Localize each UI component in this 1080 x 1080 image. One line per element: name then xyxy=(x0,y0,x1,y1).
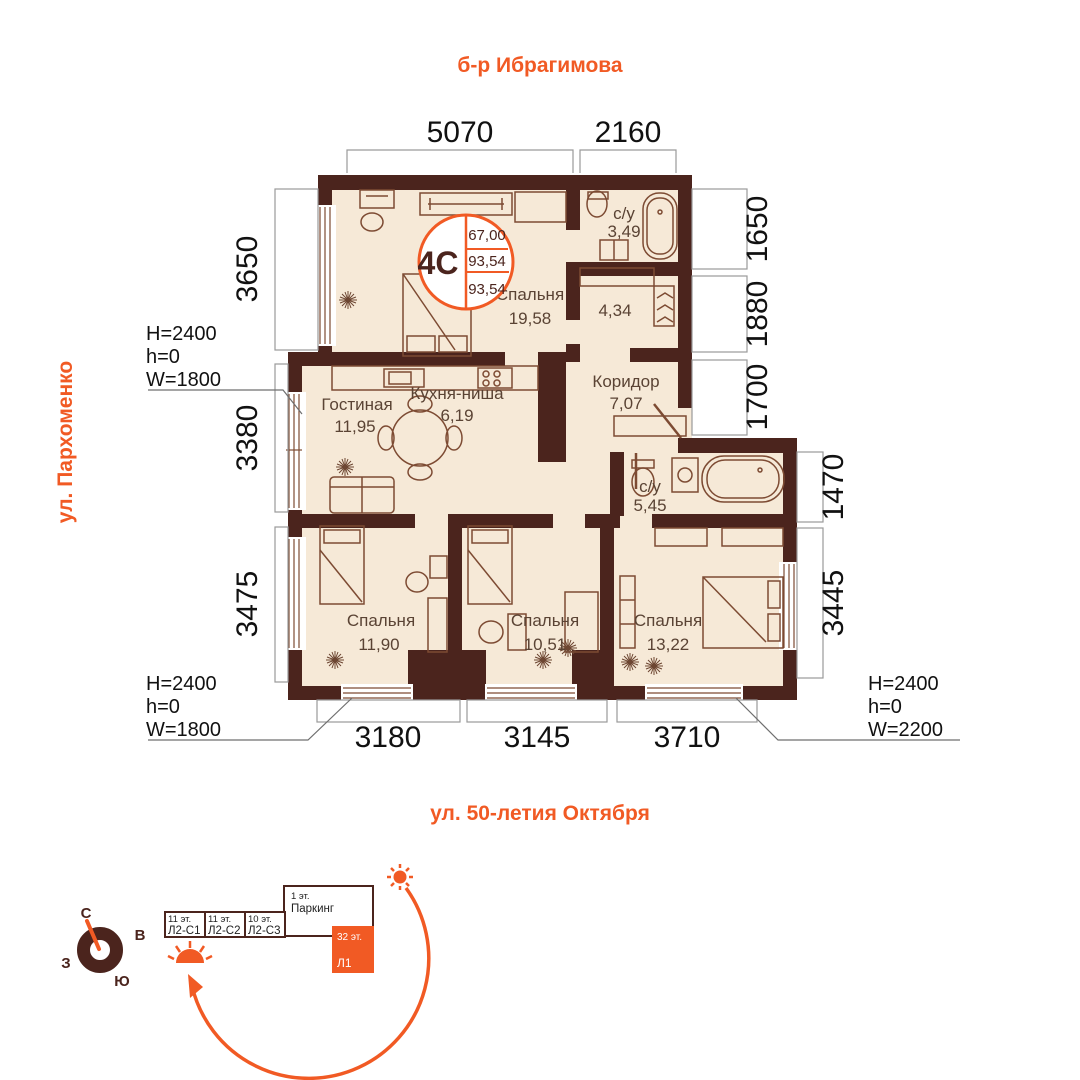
window-bottom-2 xyxy=(485,684,577,702)
window-bottom-1 xyxy=(341,684,413,702)
unit-badge: 4С 67,00 93,54 93,54 xyxy=(418,215,513,309)
room-label-corridor: Коридор xyxy=(592,372,659,391)
building-parking-name: Паркинг xyxy=(291,903,334,915)
site-plan: С В З Ю 1 эт. Паркинг 11 эт. Л2-С1 11 эт… xyxy=(61,864,428,1078)
room-area-corridor: 7,07 xyxy=(609,394,642,413)
room-area-bedroom-left: 11,90 xyxy=(358,635,399,654)
street-top: б-р Ибрагимова xyxy=(457,54,623,77)
spec-lower-right-3: W=2200 xyxy=(868,719,943,741)
room-label-bedroom-right: Спальня xyxy=(634,611,702,630)
compass-south: Ю xyxy=(114,973,129,990)
spec-upper-left-3: W=1800 xyxy=(146,369,221,391)
unit-type: 4С xyxy=(418,245,459,281)
building-parking-floors: 1 эт. xyxy=(291,891,310,902)
unit-value-3: 93,54 xyxy=(468,281,506,298)
dim-right-inner-1: 1650 xyxy=(741,196,774,263)
sunrise-icon xyxy=(168,941,212,963)
spec-upper-left-1: H=2400 xyxy=(146,323,217,345)
window-bottom-3 xyxy=(645,684,743,702)
dim-left-1: 3650 xyxy=(231,236,264,303)
building-l2s1-name: Л2-С1 xyxy=(168,925,200,937)
room-area-wardrobe: 4,34 xyxy=(598,301,631,320)
dim-bottom-1: 3180 xyxy=(355,721,422,754)
room-area-bathroom-top: 3,49 xyxy=(607,222,640,241)
compass-east: В xyxy=(135,927,146,944)
building-l2s3-name: Л2-С3 xyxy=(248,925,280,937)
room-area-living: 11,95 xyxy=(334,417,375,436)
room-area-bedroom-right: 13,22 xyxy=(647,635,690,654)
window-bedroom-main xyxy=(314,205,336,346)
room-area-bedroom-main: 19,58 xyxy=(509,309,552,328)
spec-lower-right-1: H=2400 xyxy=(868,673,939,695)
room-label-bedroom-center: Спальня xyxy=(511,611,579,630)
street-left: ул. Пархоменко xyxy=(54,361,77,523)
sun-icon xyxy=(387,864,413,890)
building-l1-name: Л1 xyxy=(337,956,352,970)
room-area-kitchen: 6,19 xyxy=(440,406,473,425)
room-label-kitchen: Кухня-ниша xyxy=(410,384,504,403)
room-label-living: Гостиная xyxy=(321,395,392,414)
street-bottom: ул. 50-летия Октября xyxy=(430,802,650,825)
spec-lower-right-2: h=0 xyxy=(868,696,902,718)
unit-value-2: 93,54 xyxy=(468,253,506,270)
spec-lower-left-1: H=2400 xyxy=(146,673,217,695)
dim-left-2: 3380 xyxy=(231,405,264,472)
window-bedroom-left xyxy=(284,537,306,650)
unit-value-1: 67,00 xyxy=(468,227,506,244)
dim-right-outer-1: 1470 xyxy=(817,454,850,521)
spec-upper-left-2: h=0 xyxy=(146,346,180,368)
room-label-bathroom-top: с/у xyxy=(613,204,635,223)
window-living xyxy=(284,392,306,510)
building-l2s2-floors: 11 эт. xyxy=(208,914,231,925)
room-area-bathroom-mid: 5,45 xyxy=(633,496,666,515)
building-l2s2-name: Л2-С2 xyxy=(208,925,240,937)
building-l2s1-floors: 11 эт. xyxy=(168,914,191,925)
building-l1-floors: 32 эт. xyxy=(337,932,362,943)
floor-plan-canvas: б-р Ибрагимова ул. Пархоменко ул. 50-лет… xyxy=(0,0,1080,1080)
dim-bottom-2: 3145 xyxy=(504,721,571,754)
room-label-bedroom-left: Спальня xyxy=(347,611,415,630)
compass: С В З Ю xyxy=(61,905,145,990)
room-label-bathroom-mid: с/у xyxy=(639,477,661,496)
dim-bottom-3: 3710 xyxy=(654,721,721,754)
dim-right-inner-3: 1700 xyxy=(741,364,774,431)
spec-lower-left-3: W=1800 xyxy=(146,719,221,741)
dim-top-1: 5070 xyxy=(427,116,494,149)
dim-top-2: 2160 xyxy=(595,116,662,149)
dim-right-outer-2: 3445 xyxy=(817,570,850,637)
room-area-bedroom-center: 10,51 xyxy=(524,635,567,654)
building-l2s3-floors: 10 эт. xyxy=(248,914,272,925)
dim-right-inner-2: 1880 xyxy=(741,281,774,348)
compass-west: З xyxy=(61,955,70,972)
compass-north: С xyxy=(81,905,92,922)
spec-lower-left-2: h=0 xyxy=(146,696,180,718)
dim-left-3: 3475 xyxy=(231,571,264,638)
